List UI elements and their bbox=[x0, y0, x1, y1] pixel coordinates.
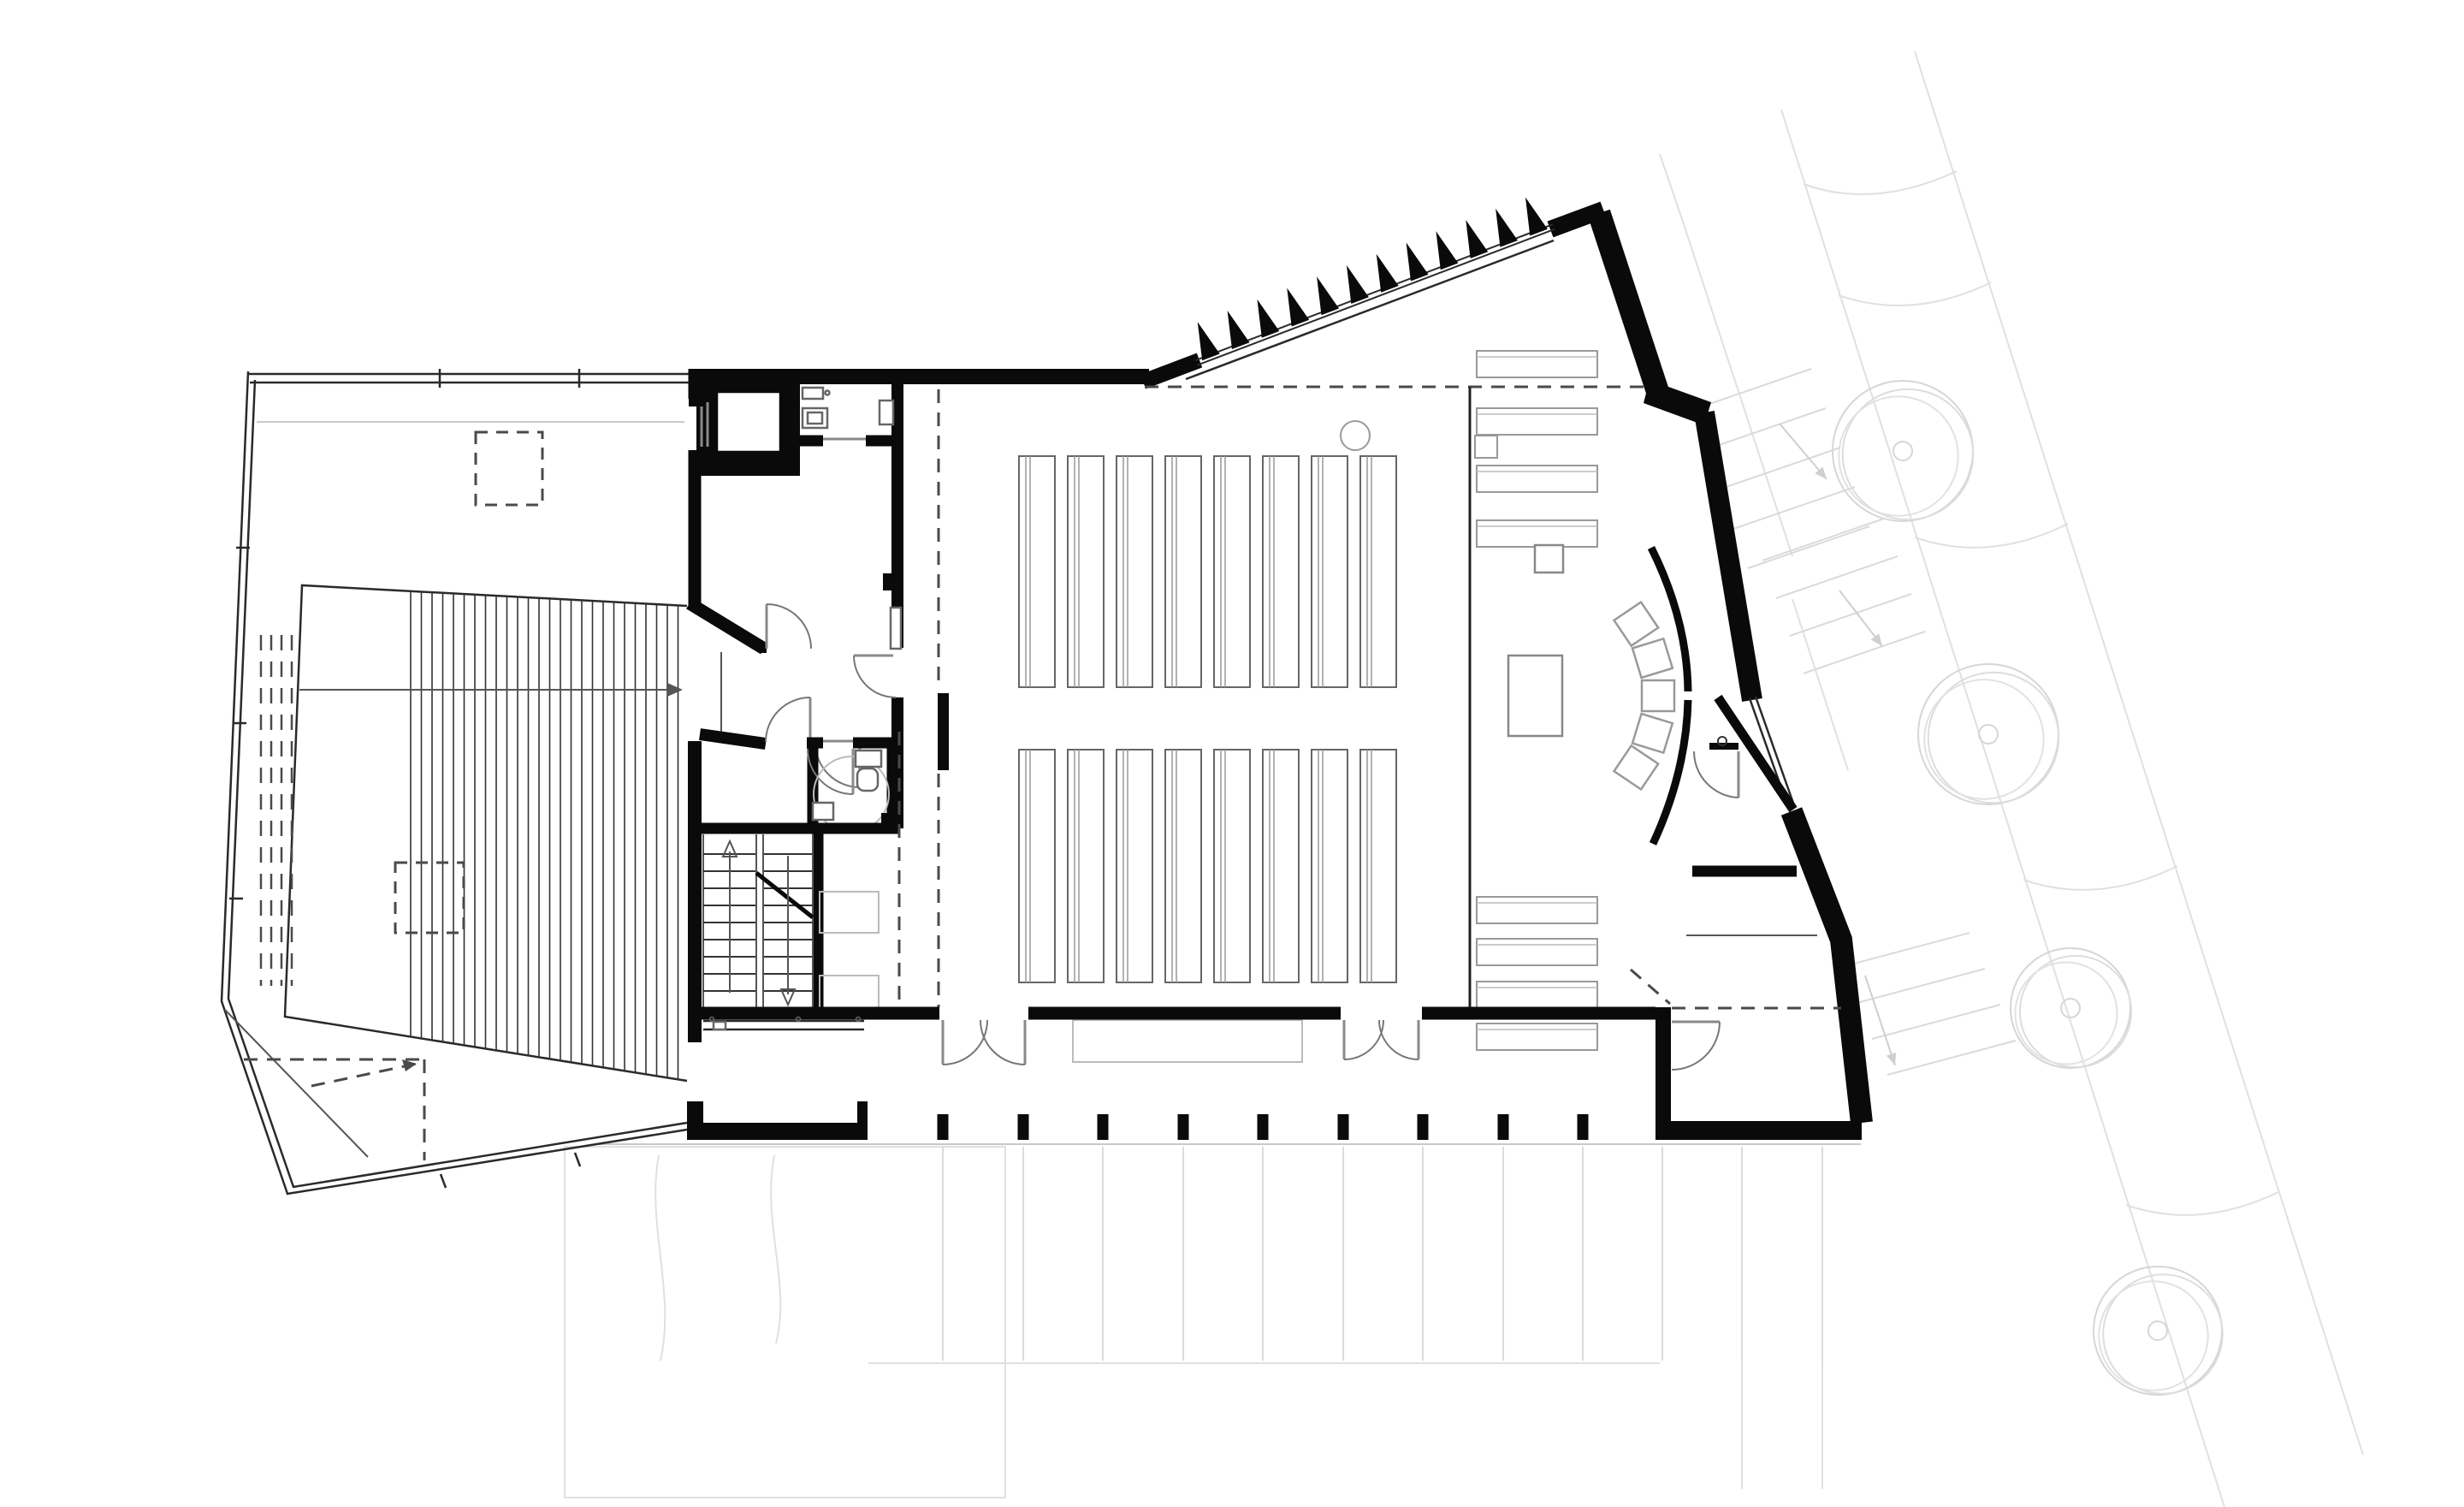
sawtooth-fin bbox=[1317, 276, 1339, 315]
pew-blocks bbox=[1019, 456, 1396, 982]
pew bbox=[1116, 750, 1152, 982]
mullion-tick bbox=[440, 369, 579, 388]
chancel-chair bbox=[1614, 602, 1659, 646]
pew-seat-line bbox=[1026, 750, 1030, 982]
portico-sill bbox=[687, 1123, 868, 1140]
corner-line bbox=[225, 1010, 368, 1157]
vestry-door-swing bbox=[1694, 751, 1738, 798]
portico-column bbox=[1338, 1114, 1349, 1140]
portico-column bbox=[1178, 1114, 1189, 1140]
wc-sink bbox=[813, 803, 833, 820]
sawtooth-fin bbox=[1257, 300, 1279, 338]
sawtooth-fin bbox=[1496, 209, 1518, 247]
sawtooth-fin bbox=[1198, 322, 1220, 360]
screen-vent bbox=[714, 1022, 726, 1029]
tree-trunk bbox=[1893, 442, 1912, 460]
pew-seat-line bbox=[1318, 750, 1323, 982]
tree-canopy bbox=[2094, 1267, 2222, 1395]
pew bbox=[1360, 750, 1396, 982]
site-step bbox=[1857, 969, 1985, 1003]
ramp-dashed-strip bbox=[261, 635, 292, 986]
core-chamfer-wall bbox=[690, 603, 764, 649]
canopy-dashed-diag bbox=[1631, 970, 1670, 1004]
pavilion bbox=[222, 369, 690, 1194]
portico-column bbox=[1418, 1114, 1429, 1140]
band-divider bbox=[2023, 866, 2177, 890]
pew-seat-line bbox=[1075, 750, 1079, 982]
sawtooth-clerestory bbox=[1195, 197, 1555, 365]
column-above-dashed bbox=[476, 432, 542, 505]
lower-chamfer-wall bbox=[700, 734, 766, 744]
tree-canopy bbox=[1924, 679, 2043, 798]
side-bench bbox=[1477, 520, 1597, 547]
tree-trunk bbox=[2148, 1321, 2167, 1340]
wall-cabinet bbox=[880, 400, 893, 424]
portico-columns bbox=[938, 1114, 1589, 1140]
chancel-chair bbox=[1632, 638, 1673, 678]
kitchen-tap bbox=[826, 391, 830, 395]
east-wall bbox=[1704, 412, 1752, 700]
sawtooth-fin bbox=[1377, 254, 1399, 293]
pavilion-glazing-inner bbox=[228, 380, 687, 1187]
door-swing bbox=[854, 656, 896, 697]
ramp-treads bbox=[411, 591, 678, 1080]
site-step bbox=[1762, 519, 1884, 561]
tree-canopy bbox=[2099, 1281, 2208, 1391]
open-door-panel bbox=[891, 608, 901, 649]
floor-plan-drawing bbox=[0, 0, 2464, 1507]
pew-seat-line bbox=[1270, 456, 1274, 687]
pew bbox=[1360, 456, 1396, 687]
ne-wall bbox=[1599, 213, 1657, 390]
east-wing bbox=[1599, 213, 1862, 1140]
lawn-curve bbox=[771, 1155, 780, 1344]
pew bbox=[1019, 750, 1055, 982]
entry-door-swing bbox=[1379, 1020, 1419, 1059]
paving-panel bbox=[565, 1147, 1005, 1498]
pew-seat-line bbox=[1318, 456, 1323, 687]
pew bbox=[1312, 456, 1347, 687]
kitchen-counter bbox=[803, 388, 823, 399]
portico-column bbox=[1498, 1114, 1509, 1140]
site-step bbox=[1790, 594, 1911, 636]
entry-door-swing bbox=[1344, 1020, 1383, 1059]
pew bbox=[1263, 750, 1299, 982]
gallery-pier bbox=[938, 693, 949, 770]
pew-seat-line bbox=[1123, 456, 1128, 687]
side-bench bbox=[1477, 982, 1597, 1008]
kitchen-sink-basin bbox=[808, 412, 822, 424]
pew bbox=[1214, 750, 1250, 982]
tree-canopy bbox=[1833, 381, 1973, 521]
garden-band-edge-east bbox=[1915, 51, 2363, 1455]
altar bbox=[1508, 656, 1562, 736]
tree-canopy bbox=[1918, 664, 2058, 804]
chancel-chair bbox=[1632, 714, 1673, 753]
site-step bbox=[1704, 408, 1826, 450]
floor-plan-sheet bbox=[0, 0, 2464, 1507]
entry-door-leaf bbox=[1344, 1020, 1419, 1059]
threshold-platform bbox=[1073, 1020, 1302, 1062]
column-above-dashed-squares bbox=[395, 432, 542, 933]
site-step bbox=[1748, 526, 1869, 568]
tree-canopy bbox=[2011, 948, 2130, 1068]
wc-bowl bbox=[857, 768, 878, 791]
se-door-jamb bbox=[1655, 1007, 1671, 1140]
pew bbox=[1068, 456, 1104, 687]
pew-seat-line bbox=[1026, 456, 1030, 687]
sawtooth-fin bbox=[1436, 231, 1458, 270]
pew bbox=[1263, 456, 1299, 687]
side-bench bbox=[1477, 939, 1597, 965]
wc-cistern bbox=[856, 751, 881, 767]
band-divider bbox=[1915, 524, 2068, 548]
pew-seat-line bbox=[1123, 750, 1128, 982]
pew bbox=[1214, 456, 1250, 687]
pew-seat-line bbox=[1270, 750, 1274, 982]
service-box bbox=[1475, 436, 1497, 458]
pew-seat-line bbox=[1172, 456, 1176, 687]
side-bench bbox=[1477, 1023, 1597, 1050]
pew-seat-line bbox=[1367, 750, 1371, 982]
elevator-cab bbox=[717, 392, 780, 452]
sawtooth-fin bbox=[1228, 311, 1250, 349]
sawtooth-fin bbox=[1525, 197, 1548, 235]
site-step bbox=[1733, 487, 1855, 529]
pew bbox=[1165, 456, 1201, 687]
side-bench bbox=[1477, 466, 1597, 492]
side-bench bbox=[1477, 897, 1597, 923]
pew bbox=[1019, 456, 1055, 687]
portico-column bbox=[1258, 1114, 1269, 1140]
pew-seat-line bbox=[1075, 456, 1079, 687]
pew bbox=[1116, 456, 1152, 687]
step-arrow bbox=[1865, 976, 1895, 1065]
tree-trunk bbox=[1979, 725, 1998, 744]
door-swing bbox=[766, 697, 810, 742]
site-step bbox=[1841, 933, 1969, 967]
slope-wall-cap-west bbox=[1143, 360, 1199, 382]
garden-band-edge-west bbox=[1781, 110, 2224, 1507]
worship-hall bbox=[687, 197, 1688, 1140]
ramp-arrow-head bbox=[667, 683, 683, 697]
stair-stringer bbox=[756, 834, 763, 1012]
door-mat bbox=[820, 892, 879, 933]
chancel-chair bbox=[1614, 745, 1659, 789]
site-step bbox=[1776, 556, 1898, 598]
entry-door-leaf bbox=[943, 1020, 1025, 1065]
pew bbox=[1312, 750, 1347, 982]
band-divider bbox=[1839, 282, 1991, 306]
portico-column bbox=[1018, 1114, 1029, 1140]
pew-seat-line bbox=[1172, 750, 1176, 982]
pew bbox=[1165, 750, 1201, 982]
sawtooth-fin bbox=[1287, 288, 1309, 326]
pew-seat-line bbox=[1221, 750, 1225, 982]
tree-trunk bbox=[2061, 999, 2080, 1018]
core bbox=[686, 369, 949, 1042]
sawtooth-fin bbox=[1347, 265, 1369, 304]
door-stop-nub bbox=[883, 573, 898, 590]
sawtooth-fin bbox=[1407, 242, 1429, 281]
side-bench bbox=[1477, 351, 1597, 377]
se-door-swing bbox=[1672, 1022, 1720, 1070]
band-divider bbox=[1804, 171, 1957, 194]
stair-cut-line bbox=[756, 873, 813, 917]
chancel-chairs bbox=[1614, 602, 1674, 790]
side-bench bbox=[1477, 408, 1597, 435]
site-step bbox=[1804, 632, 1925, 673]
slope-dash-diag bbox=[311, 1064, 417, 1086]
pew-seat-line bbox=[1221, 456, 1225, 687]
paving-joints bbox=[943, 1147, 1822, 1361]
tree-canopy bbox=[1839, 396, 1958, 515]
sawtooth-fin bbox=[1466, 220, 1488, 258]
site-step bbox=[1872, 1005, 2000, 1039]
se-wall bbox=[1792, 811, 1862, 1123]
pew bbox=[1068, 750, 1104, 982]
door-swing bbox=[767, 604, 811, 649]
step-arrow-head bbox=[1871, 633, 1882, 646]
north-wall-west-stub bbox=[689, 369, 703, 406]
portico-column bbox=[1098, 1114, 1109, 1140]
lectern bbox=[1535, 545, 1563, 573]
tree-canopy bbox=[2016, 963, 2117, 1065]
chancel-chair bbox=[1642, 680, 1674, 711]
hall-column-circle bbox=[1341, 421, 1370, 450]
step-arrow-head bbox=[1886, 1053, 1896, 1065]
portico-column bbox=[938, 1114, 949, 1140]
pew-seat-line bbox=[1367, 456, 1371, 687]
band-divider bbox=[2126, 1191, 2280, 1215]
portico-screen bbox=[703, 1021, 864, 1029]
lawn-curve bbox=[655, 1155, 665, 1361]
site-step bbox=[1887, 1041, 2016, 1075]
portico-column bbox=[1578, 1114, 1589, 1140]
